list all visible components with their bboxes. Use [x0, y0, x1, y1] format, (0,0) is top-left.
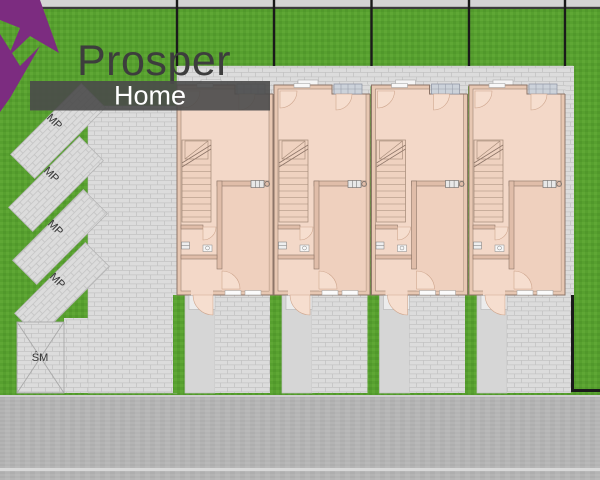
- central-paving: [88, 106, 177, 393]
- road-marking-line: [0, 468, 600, 471]
- trash-label: ŚM: [32, 351, 49, 364]
- trash-enclosure: ŚM: [17, 322, 64, 393]
- right-plot-border: [571, 295, 574, 391]
- green-strip: [368, 295, 380, 393]
- road: [0, 395, 600, 480]
- green-strip: [270, 295, 282, 393]
- house-unit-3: [372, 80, 469, 315]
- right-plot-border-bottom: [571, 389, 600, 392]
- house-row: [177, 80, 566, 315]
- brand-sub-name: Home: [114, 81, 186, 111]
- brand-name: Prosper: [77, 37, 231, 85]
- north-sidewalk: [0, 0, 600, 7]
- front-yards: [173, 295, 571, 393]
- driveway: [312, 295, 368, 393]
- north-road-edge-line: [0, 7, 600, 9]
- driveway: [215, 295, 270, 393]
- site-plan-drawing: MP MP MP MP ŚM: [0, 0, 600, 480]
- site-plan-page: MP MP MP MP ŚM: [0, 0, 600, 480]
- green-strip: [173, 295, 185, 393]
- right-walkway: [565, 66, 574, 295]
- driveway: [410, 295, 466, 393]
- green-strip: [465, 295, 477, 393]
- central-paving-extension: [64, 318, 88, 393]
- house-unit-2: [274, 80, 371, 315]
- driveway: [507, 295, 571, 393]
- house-unit-1: [177, 80, 274, 315]
- house-unit-4: [469, 80, 566, 315]
